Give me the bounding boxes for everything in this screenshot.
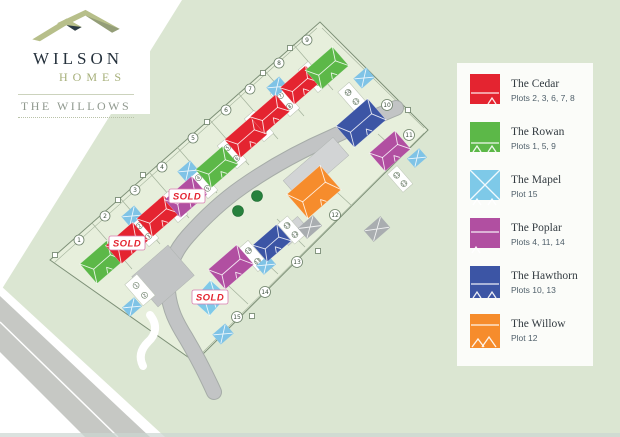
- legend-title: The Cedar: [511, 78, 575, 90]
- plot-marker-7: 7: [245, 84, 255, 94]
- legend-swatch-willow-icon: [468, 313, 502, 353]
- sold-badge-plot-2: SOLD: [109, 236, 145, 250]
- plot-marker-14: 14: [260, 287, 271, 298]
- legend-swatch-rowan-icon: [468, 121, 502, 161]
- legend-panel: The Cedar Plots 2, 3, 6, 7, 8 The Rowan …: [457, 63, 593, 366]
- svg-text:6: 6: [224, 107, 228, 114]
- plot-marker-12: 12: [330, 210, 341, 221]
- store-building: [364, 216, 390, 242]
- svg-text:SOLD: SOLD: [173, 191, 201, 202]
- legend-title: The Poplar: [511, 222, 565, 234]
- legend-swatch-poplar-icon: [468, 217, 502, 257]
- legend-title: The Hawthorn: [511, 270, 578, 282]
- svg-text:11: 11: [405, 132, 413, 139]
- plot-marker-4: 4: [157, 162, 167, 172]
- legend-plots: Plots 2, 3, 6, 7, 8: [511, 93, 575, 103]
- plot-marker-8: 8: [274, 58, 284, 68]
- legend-item-poplar: The Poplar Plots 4, 11, 14: [468, 217, 587, 257]
- legend-item-willow: The Willow Plot 12: [468, 313, 587, 353]
- legend-plots: Plot 12: [511, 333, 566, 343]
- legend-title: The Willow: [511, 318, 566, 330]
- legend-item-mapel: The Mapel Plot 15: [468, 169, 587, 209]
- legend-plots: Plots 4, 11, 14: [511, 237, 565, 247]
- legend-swatch-cedar-icon: [468, 73, 502, 113]
- legend-title: The Rowan: [511, 126, 564, 138]
- development-name: THE WILLOWS: [18, 94, 134, 118]
- plot-marker-6: 6: [221, 105, 231, 115]
- legend-title: The Mapel: [511, 174, 561, 186]
- garage-plot-11: [407, 148, 427, 168]
- legend-item-hawthorn: The Hawthorn Plots 10, 13: [468, 265, 587, 305]
- svg-text:1: 1: [77, 237, 81, 244]
- svg-text:14: 14: [261, 289, 269, 296]
- svg-text:SOLD: SOLD: [196, 292, 224, 303]
- plot-marker-1: 1: [74, 235, 84, 245]
- svg-text:13: 13: [293, 259, 301, 266]
- svg-text:9: 9: [305, 37, 309, 44]
- svg-text:15: 15: [233, 314, 241, 321]
- sold-badge-plot-4: SOLD: [169, 189, 205, 203]
- svg-text:3: 3: [133, 187, 137, 194]
- svg-text:12: 12: [331, 212, 339, 219]
- siteplan-page: 1 2 2 3 3 4 4 5 5 6 6 7 7: [0, 0, 620, 437]
- svg-text:SOLD: SOLD: [113, 238, 141, 249]
- brand-suffix: HOMES: [18, 70, 134, 85]
- plot-marker-11: 11: [404, 130, 415, 141]
- svg-text:8: 8: [277, 60, 281, 67]
- svg-text:4: 4: [160, 164, 164, 171]
- plot-marker-5: 5: [188, 133, 198, 143]
- legend-plots: Plots 1, 5, 9: [511, 141, 564, 151]
- brand-logo: WILSON HOMES THE WILLOWS: [18, 8, 134, 118]
- legend-plots: Plot 15: [511, 189, 561, 199]
- tree: [252, 191, 263, 202]
- plot-marker-9: 9: [302, 35, 312, 45]
- plot-marker-10: 10: [382, 100, 393, 111]
- plot-marker-2: 2: [100, 211, 110, 221]
- bottom-edge-strip: [0, 433, 620, 437]
- legend-swatch-mapel-icon: [468, 169, 502, 209]
- plot-marker-13: 13: [292, 257, 303, 268]
- svg-text:10: 10: [383, 102, 391, 109]
- svg-text:2: 2: [103, 213, 107, 220]
- brand-name: WILSON: [18, 49, 134, 69]
- sold-badge-plot-15: SOLD: [192, 290, 228, 304]
- tree: [233, 206, 244, 217]
- driveway-plot-11: 11 11: [387, 166, 413, 193]
- legend-plots: Plots 10, 13: [511, 285, 578, 295]
- legend-item-cedar: The Cedar Plots 2, 3, 6, 7, 8: [468, 73, 587, 113]
- svg-text:7: 7: [248, 86, 252, 93]
- plot-marker-3: 3: [130, 185, 140, 195]
- roof-swoosh-icon: [25, 8, 127, 46]
- legend-item-rowan: The Rowan Plots 1, 5, 9: [468, 121, 587, 161]
- svg-text:5: 5: [191, 135, 195, 142]
- legend-swatch-hawthorn-icon: [468, 265, 502, 305]
- plot-marker-15: 15: [232, 312, 243, 323]
